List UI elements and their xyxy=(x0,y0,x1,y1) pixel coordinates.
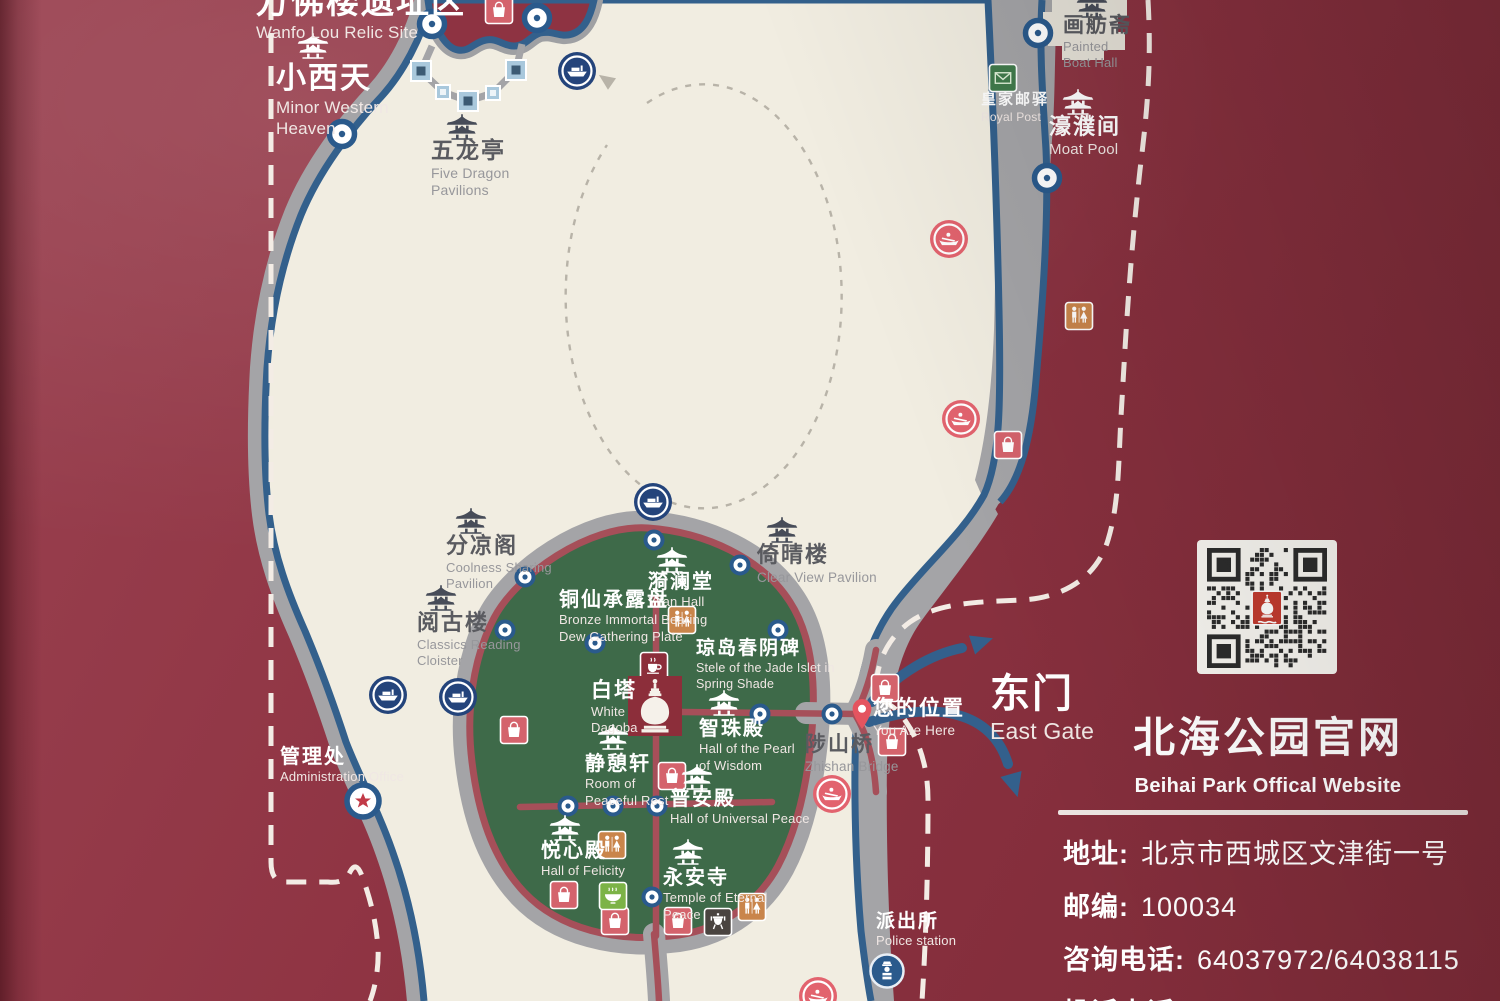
room-peaceful-rest-zh: 静憩轩 xyxy=(585,753,669,775)
painted-boat-hall-en: Boat Hall xyxy=(1063,56,1132,71)
five-dragon-pavilions-zh: 五龙亭 xyxy=(431,138,509,164)
map-label-hall-universal-peace: 普安殿Hall of Universal Peace xyxy=(670,788,810,827)
royal-post-zh: 皇家邮驿 xyxy=(981,92,1049,109)
complaint-phone-row: 投诉电话: 64031102 xyxy=(1063,991,1460,1001)
map-label-clear-view-pavilion: 倚晴楼Clear View Pavilion xyxy=(757,543,877,585)
map-label-painted-boat-hall: 画舫斋PaintedBoat Hall xyxy=(1063,14,1132,71)
qr-center-logo xyxy=(1252,591,1282,625)
clear-view-pavilion-zh: 倚晴楼 xyxy=(757,543,877,568)
painted-boat-hall-en: Painted xyxy=(1063,40,1132,55)
minor-western-heaven-en: Minor Western xyxy=(276,98,389,117)
address-value: 北京市西城区文津街一号 xyxy=(1141,832,1449,871)
white-dagoba-en: White xyxy=(591,705,638,720)
contact-info: 地址: 北京市西城区文津街一号 邮编: 100034 咨询电话: 6403797… xyxy=(1063,832,1460,1001)
map-label-royal-post: 皇家邮驿Royal Post xyxy=(981,92,1049,124)
east-gate-zh: 东门 xyxy=(990,672,1094,717)
map-label-white-dagoba: 白塔WhiteDagoba xyxy=(591,679,638,736)
classics-reading-cloister-zh: 阅古楼 xyxy=(417,611,521,636)
postcode-label: 邮编: xyxy=(1063,885,1129,924)
bronze-immortal-plate-zh: 铜仙承露盘 xyxy=(559,589,707,611)
white-dagoba-zh: 白塔 xyxy=(591,679,638,703)
postcode-row: 邮编: 100034 xyxy=(1063,885,1460,924)
divider-line xyxy=(1058,810,1468,815)
hall-of-felicity-en: Hall of Felicity xyxy=(541,864,625,879)
site-title-zh: 北海公园官网 xyxy=(1120,704,1416,765)
stele-jade-islet-zh: 琼岛春阴碑 xyxy=(696,638,835,659)
classics-reading-cloister-en: Classics Reading xyxy=(417,638,521,653)
map-label-room-peaceful-rest: 静憩轩Room ofPeaceful Rest xyxy=(585,753,669,808)
site-title-en: Beihai Park Offical Website xyxy=(1120,775,1416,798)
white-dagoba-en: Dagoba xyxy=(591,721,638,736)
inquiry-phone-label: 咨询电话: xyxy=(1063,938,1185,977)
coolness-sharing-pavilion-en: Pavilion xyxy=(446,577,552,592)
room-peaceful-rest-en: Peaceful Rest xyxy=(585,794,669,809)
bronze-immortal-plate-en: Bronze Immortal Bearing xyxy=(559,613,707,628)
site-title: 北海公园官网 Beihai Park Offical Website xyxy=(1120,704,1416,798)
map-label-minor-western-heaven: 小西天Minor WesternHeaven xyxy=(276,62,389,138)
map-label-east-gate: 东门East Gate xyxy=(990,672,1094,745)
temple-eternal-peace-en: Peace xyxy=(663,908,768,923)
five-dragon-pavilions-en: Five Dragon xyxy=(431,166,509,182)
stele-jade-islet-en: Stele of the Jade Islet in xyxy=(696,661,835,675)
map-label-stele-jade-islet: 琼岛春阴碑Stele of the Jade Islet inSpring Sh… xyxy=(696,638,835,691)
hall-pearl-of-wisdom-zh: 智珠殿 xyxy=(699,718,795,740)
wanfo-lou-relic-site-zh: 万佛楼遗址区 xyxy=(256,0,466,21)
map-label-five-dragon-pavilions: 五龙亭Five DragonPavilions xyxy=(431,138,509,199)
clear-view-pavilion-en: Clear View Pavilion xyxy=(757,570,877,585)
moat-pool-zh: 濠濮间 xyxy=(1049,115,1121,140)
beihai-park-map-sign: 万佛楼遗址区Wanfo Lou Relic Site小西天Minor Weste… xyxy=(0,0,1500,1001)
stele-jade-islet-en: Spring Shade xyxy=(696,677,835,691)
map-label-hall-pearl-of-wisdom: 智珠殿Hall of the Pearlof Wisdom xyxy=(699,718,795,773)
temple-eternal-peace-en: Temple of Eternal xyxy=(663,891,768,906)
police-station-zh: 派出所 xyxy=(876,911,956,932)
minor-western-heaven-zh: 小西天 xyxy=(276,62,389,96)
address-row: 地址: 北京市西城区文津街一号 xyxy=(1063,832,1460,871)
room-peaceful-rest-en: Room of xyxy=(585,777,669,792)
hall-universal-peace-zh: 普安殿 xyxy=(670,788,810,810)
map-label-wanfo-lou-relic-site: 万佛楼遗址区Wanfo Lou Relic Site xyxy=(256,0,466,42)
five-dragon-pavilions-en: Pavilions xyxy=(431,183,509,199)
you-are-here-en: You Are Here xyxy=(873,723,965,738)
hall-universal-peace-en: Hall of Universal Peace xyxy=(670,812,810,827)
map-label-classics-reading-cloister: 阅古楼Classics ReadingCloister xyxy=(417,611,521,669)
bronze-immortal-plate-en: Dew Gathering Plate xyxy=(559,630,707,645)
minor-western-heaven-en: Heaven xyxy=(276,119,389,138)
royal-post-en: Royal Post xyxy=(981,111,1049,124)
postcode-value: 100034 xyxy=(1141,892,1237,923)
hall-pearl-of-wisdom-en: of Wisdom xyxy=(699,759,795,774)
map-label-moat-pool: 濠濮间Moat Pool xyxy=(1049,115,1121,158)
map-label-police-station: 派出所Police station xyxy=(876,911,956,949)
inquiry-phone-value: 64037972/64038115 xyxy=(1197,945,1460,976)
map-label-hall-of-felicity: 悦心殿Hall of Felicity xyxy=(541,840,625,879)
wanfo-lou-relic-site-en: Wanfo Lou Relic Site xyxy=(256,23,466,42)
map-label-bronze-immortal-plate: 铜仙承露盘Bronze Immortal BearingDew Gatherin… xyxy=(559,589,707,644)
complaint-phone-label: 投诉电话: xyxy=(1063,991,1185,1001)
administration-office-en: Administration Office xyxy=(280,770,404,785)
moat-pool-en: Moat Pool xyxy=(1049,142,1121,159)
inquiry-phone-row: 咨询电话: 64037972/64038115 xyxy=(1063,938,1460,977)
coolness-sharing-pavilion-zh: 分凉阁 xyxy=(446,534,552,559)
temple-eternal-peace-zh: 永安寺 xyxy=(663,867,768,889)
hall-of-felicity-zh: 悦心殿 xyxy=(541,840,625,862)
map-label-coolness-sharing-pavilion: 分凉阁Coolness SharingPavilion xyxy=(446,534,552,592)
hall-pearl-of-wisdom-en: Hall of the Pearl xyxy=(699,742,795,757)
zhishan-bridge-en: Zhishan Bridge xyxy=(805,759,899,774)
classics-reading-cloister-en: Cloister xyxy=(417,654,521,669)
qr-code xyxy=(1197,540,1337,674)
administration-office-zh: 管理处 xyxy=(280,746,404,768)
you-are-here-zh: 您的位置 xyxy=(873,697,965,721)
coolness-sharing-pavilion-en: Coolness Sharing xyxy=(446,561,552,576)
map-label-you-are-here: 您的位置You Are Here xyxy=(873,697,965,738)
painted-boat-hall-zh: 画舫斋 xyxy=(1063,14,1132,38)
police-station-en: Police station xyxy=(876,934,956,949)
address-label: 地址: xyxy=(1063,832,1129,871)
map-label-temple-eternal-peace: 永安寺Temple of EternalPeace xyxy=(663,867,768,922)
east-gate-en: East Gate xyxy=(990,719,1094,745)
map-label-zhishan-bridge: 陟山桥Zhishan Bridge xyxy=(805,733,899,774)
map-label-administration-office: 管理处Administration Office xyxy=(280,746,404,785)
